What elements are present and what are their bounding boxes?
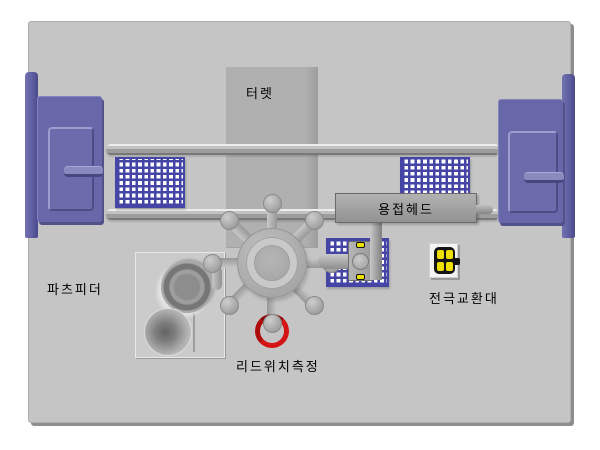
electrode-exchange-label: 전극교환대	[429, 288, 499, 307]
electrode-holder	[434, 247, 455, 274]
wheel-station-lower-right	[305, 296, 324, 315]
wheel-station-bottom	[263, 314, 282, 333]
machine-layout-diagram: 터렛 용접헤드	[0, 0, 600, 450]
electrode-pad	[437, 262, 444, 271]
cabinet-right-handle	[524, 172, 564, 183]
feeder-disc	[144, 308, 192, 356]
wheel-station-top	[263, 194, 282, 213]
electrode-pad	[446, 262, 453, 271]
indicator-dot	[356, 274, 365, 280]
wheel-station-left	[203, 254, 222, 273]
parts-tray-left	[115, 157, 185, 208]
wheel-station-upper-right	[305, 211, 324, 230]
cabinet-left	[37, 96, 102, 222]
electrode-holder-tab	[453, 258, 460, 265]
indicator-dot	[356, 242, 365, 248]
cabinet-right-door	[508, 131, 558, 213]
rotary-wheel-hub	[255, 246, 289, 280]
welding-head-box: 용접헤드	[335, 193, 477, 223]
parts-feeder-label: 파츠피더	[47, 279, 103, 298]
turret-label: 터렛	[246, 83, 274, 102]
electrode-exchange-unit	[429, 243, 458, 278]
electrode-pad	[437, 250, 444, 259]
cabinet-right	[498, 99, 563, 223]
wheel-station-upper-left	[220, 211, 239, 230]
wheel-station-lower-left	[220, 296, 239, 315]
cabinet-left-handle	[64, 166, 103, 177]
cabinet-rail-right	[562, 74, 575, 238]
welding-head-label: 용접헤드	[378, 199, 434, 218]
lead-position-measure-label: 리드위치측정	[236, 356, 320, 375]
transfer-rail-top	[106, 144, 498, 155]
fixture-knob	[352, 253, 369, 270]
welding-head-stub	[476, 205, 493, 214]
electrode-pad	[446, 250, 453, 259]
welding-head-arm	[370, 221, 382, 280]
cabinet-left-door	[48, 127, 94, 211]
